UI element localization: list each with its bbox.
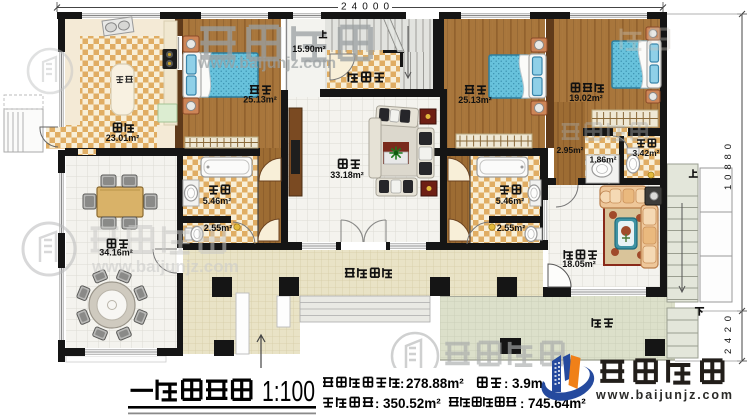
svg-text:www.baijunjz.com: www.baijunjz.com <box>197 55 336 72</box>
svg-text:2.55m²: 2.55m² <box>204 223 233 233</box>
svg-text::: : <box>504 376 508 391</box>
svg-text:2.55m²: 2.55m² <box>497 223 526 233</box>
svg-text:23.01m²: 23.01m² <box>106 133 140 143</box>
svg-text::: : <box>520 396 524 411</box>
svg-text:15.90m²: 15.90m² <box>292 44 326 54</box>
svg-text:25.13m²: 25.13m² <box>458 95 492 105</box>
svg-text:2.95m²: 2.95m² <box>557 145 584 155</box>
svg-text::: : <box>400 376 404 391</box>
svg-text:www.baijunjz.com: www.baijunjz.com <box>91 257 239 276</box>
svg-text:25.13m²: 25.13m² <box>243 95 277 105</box>
svg-text:33.18m²: 33.18m² <box>330 170 364 180</box>
svg-text:278.88m²: 278.88m² <box>406 376 464 391</box>
svg-text::: : <box>375 396 379 411</box>
svg-text:18.05m²: 18.05m² <box>562 259 596 269</box>
svg-text:3.42m²: 3.42m² <box>633 148 660 158</box>
svg-text:19.02m²: 19.02m² <box>569 93 603 103</box>
svg-text:34.16m²: 34.16m² <box>99 248 133 258</box>
svg-text:350.52m²: 350.52m² <box>383 396 441 411</box>
svg-text:3.9m: 3.9m <box>512 376 543 391</box>
svg-text:5.46m²: 5.46m² <box>496 196 525 206</box>
svg-text:1.86m²: 1.86m² <box>590 155 617 165</box>
svg-text:5.46m²: 5.46m² <box>203 196 232 206</box>
svg-text:1:100: 1:100 <box>262 376 315 408</box>
